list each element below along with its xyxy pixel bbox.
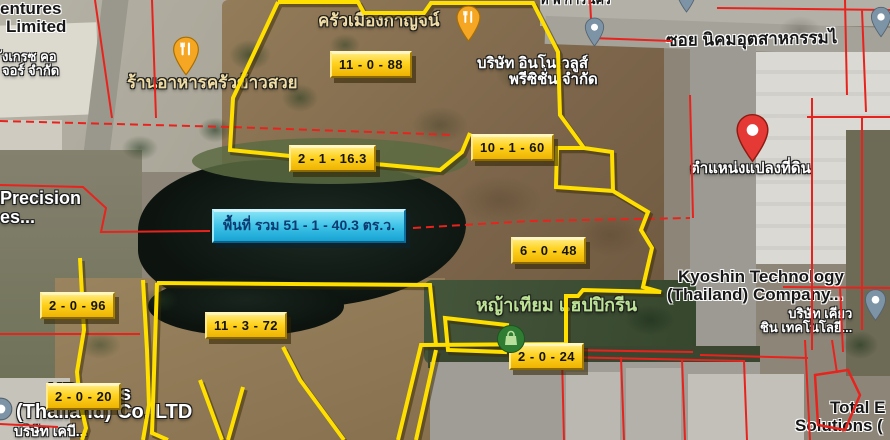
business-pin-icon[interactable]: [864, 288, 887, 327]
plot-area-label: 2 - 1 - 16.3: [289, 145, 376, 172]
location-pin-icon[interactable]: [735, 112, 770, 169]
plot-area-label: 6 - 0 - 48: [511, 237, 586, 264]
business-pin-icon[interactable]: [870, 6, 890, 43]
business-pin-icon[interactable]: [676, 0, 697, 18]
restaurant-pin-icon[interactable]: [454, 5, 483, 47]
plot-area-label: 11 - 3 - 72: [205, 312, 287, 339]
restaurant-pin-icon[interactable]: [170, 36, 202, 81]
cadastral-red-lines: [0, 0, 890, 440]
plot-area-label: 2 - 0 - 20: [46, 383, 121, 410]
store-pin-icon[interactable]: [496, 324, 526, 359]
boundary-lines-layer: [0, 0, 890, 440]
business-pin-icon[interactable]: [0, 396, 14, 427]
satellite-map-canvas[interactable]: entures Limited ังเกรซ คอ จอร์ จำกัด ร้า…: [0, 0, 890, 440]
total-area-label: พื้นที่ รวม 51 - 1 - 40.3 ตร.ว.: [212, 209, 406, 243]
plot-area-label: 2 - 0 - 96: [40, 292, 115, 319]
highlighted-red-plot: [815, 370, 860, 430]
plot-area-label: 11 - 0 - 88: [330, 51, 412, 78]
plot-area-label: 10 - 1 - 60: [471, 134, 554, 161]
business-pin-icon[interactable]: [584, 17, 605, 52]
